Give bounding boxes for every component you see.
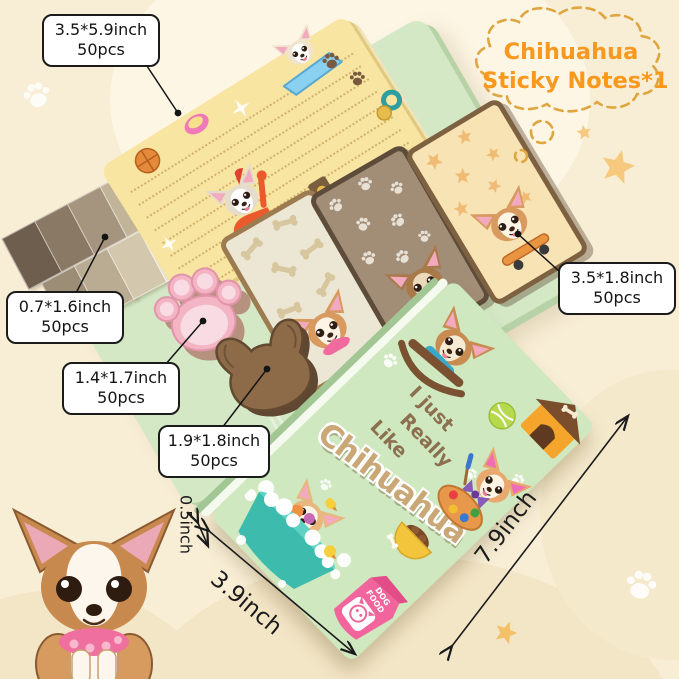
callout-qty: 50pcs	[166, 451, 262, 471]
paw-icon	[19, 77, 56, 114]
badge-title: Chihuahua Sticky Notes*1	[482, 38, 660, 97]
callout-qty: 50pcs	[50, 40, 152, 60]
callout-size: 1.4*1.7inch	[70, 368, 172, 388]
chihuahua-illustration	[6, 492, 184, 679]
product-image: I just Really Like Chihuahua	[0, 0, 679, 679]
callout-large-notepad: 3.5*5.9inch 50pcs	[42, 14, 160, 67]
callout-qty: 50pcs	[14, 317, 116, 337]
callout-qty: 50pcs	[70, 388, 172, 408]
callout-qty: 50pcs	[566, 288, 668, 308]
callout-paw-pad: 1.4*1.7inch 50pcs	[62, 362, 180, 415]
callout-size: 1.9*1.8inch	[166, 431, 262, 451]
callout-rect-pads: 3.5*1.8inch 50pcs	[558, 262, 676, 315]
dimension-thickness: 0.5inch	[177, 494, 196, 556]
paw-icon	[621, 565, 661, 605]
callout-head-pad: 1.9*1.8inch 50pcs	[158, 425, 270, 478]
callout-page-markers: 0.7*1.6inch 50pcs	[6, 291, 124, 344]
callout-size: 0.7*1.6inch	[14, 297, 116, 317]
badge-line2: Sticky Notes*1	[482, 67, 660, 96]
badge-line1: Chihuahua	[482, 38, 660, 67]
paw-icon	[349, 70, 367, 88]
callout-size: 3.5*1.8inch	[566, 268, 668, 288]
callout-size: 3.5*5.9inch	[50, 20, 152, 40]
